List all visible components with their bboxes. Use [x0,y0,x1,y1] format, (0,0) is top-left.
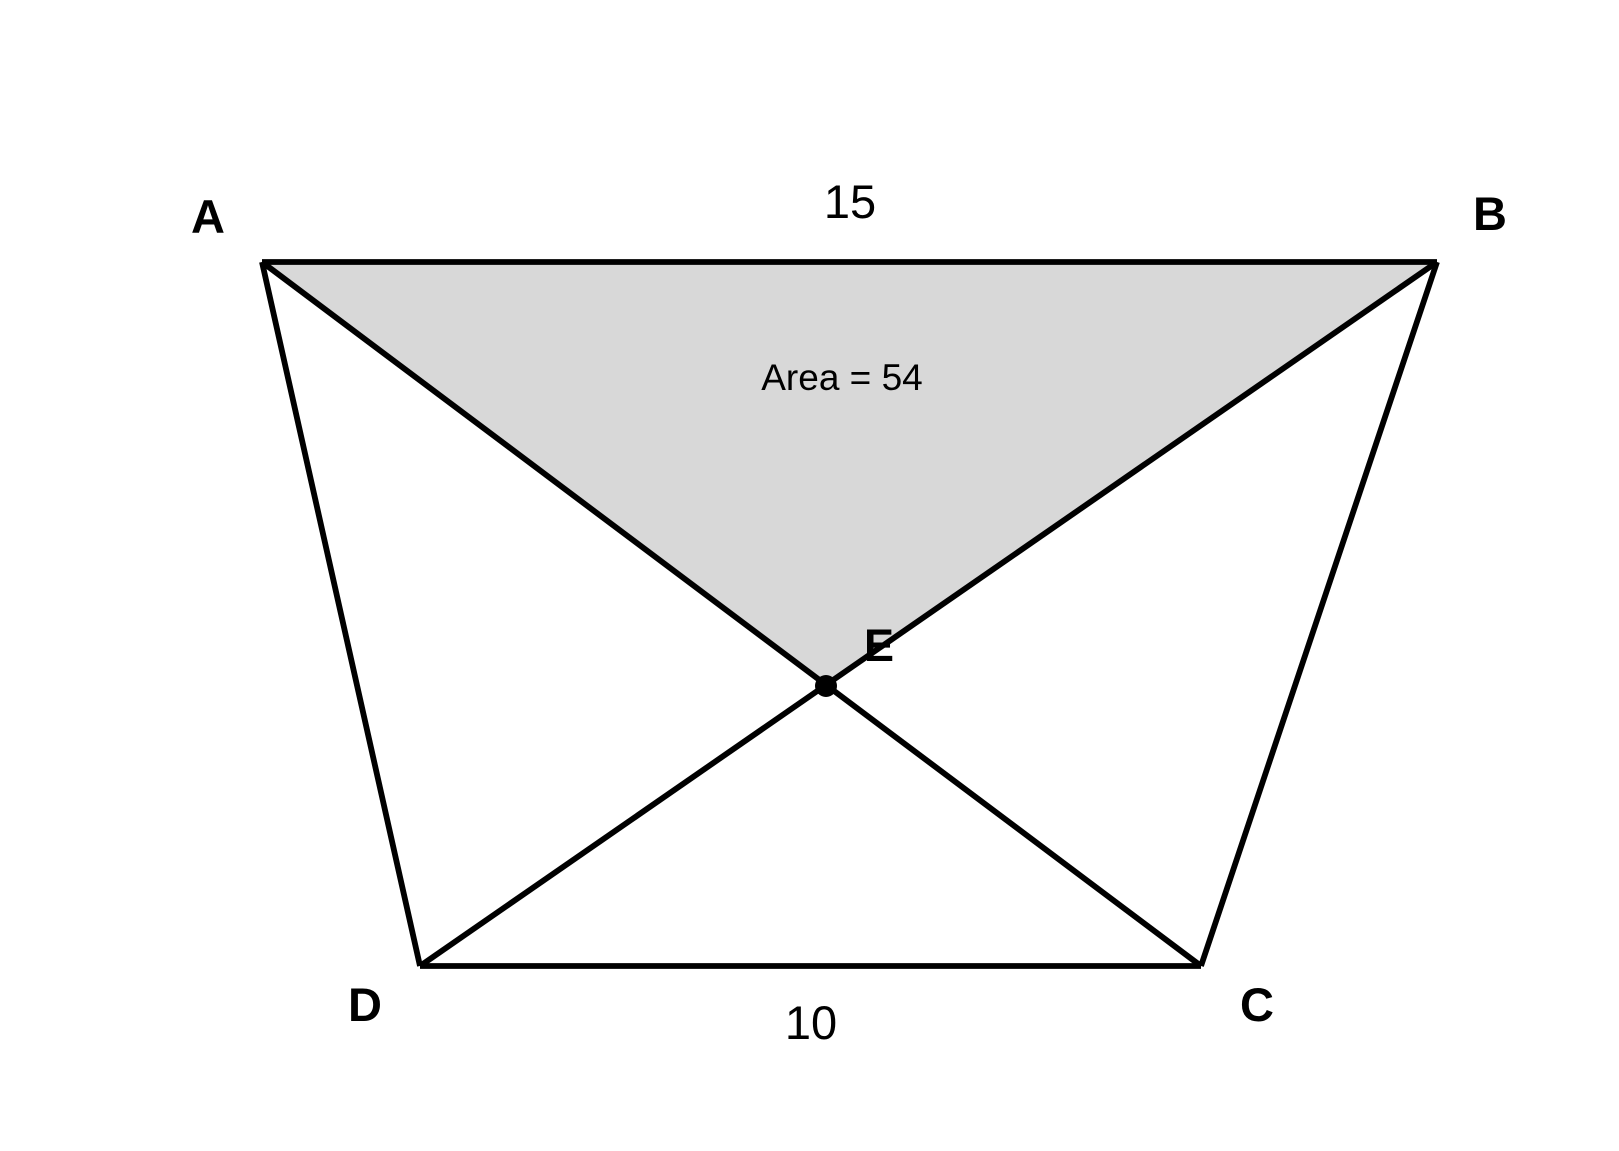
svg-text:10: 10 [785,996,837,1049]
svg-text:B: B [1473,187,1507,240]
svg-text:Area = 54: Area = 54 [761,357,922,398]
svg-text:D: D [348,978,382,1031]
svg-text:C: C [1240,978,1274,1031]
svg-text:E: E [864,620,894,671]
svg-text:A: A [191,190,225,243]
svg-text:15: 15 [824,175,876,228]
